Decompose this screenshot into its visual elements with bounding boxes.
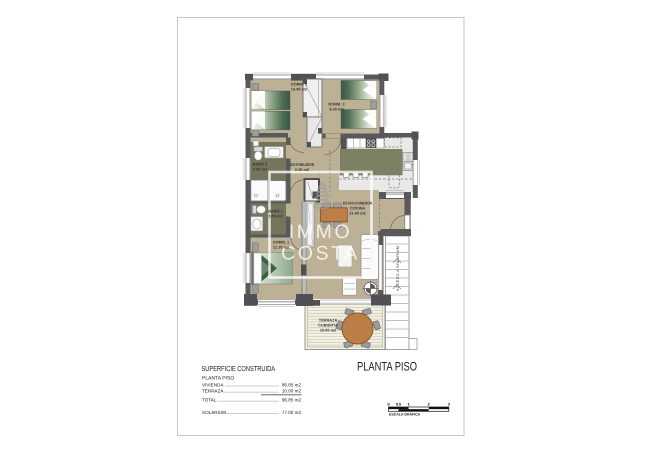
svg-text:0: 0 bbox=[387, 402, 389, 406]
svg-text:9.30 m2: 9.30 m2 bbox=[329, 107, 344, 112]
svg-text:2: 2 bbox=[428, 402, 430, 406]
svg-text:10.40 m2: 10.40 m2 bbox=[291, 87, 308, 92]
svg-text:TOTAL: TOTAL bbox=[202, 398, 217, 403]
svg-text:ESCALA GRÁFICA: ESCALA GRÁFICA bbox=[389, 411, 421, 416]
svg-text:PLANTA PISO: PLANTA PISO bbox=[357, 360, 417, 374]
svg-text:2.40 m2: 2.40 m2 bbox=[295, 167, 310, 172]
svg-text:77.00 m2: 77.00 m2 bbox=[282, 410, 302, 415]
svg-text:SUPERFICIE CONSTRUIDA: SUPERFICIE CONSTRUIDA bbox=[202, 364, 276, 373]
svg-text:10.00 m2: 10.00 m2 bbox=[282, 389, 302, 394]
svg-text:VIVIENDA: VIVIENDA bbox=[202, 382, 224, 387]
svg-text:SOLARIUM: SOLARIUM bbox=[202, 410, 226, 415]
svg-text:1: 1 bbox=[407, 402, 409, 406]
svg-text:PLANTA PISO: PLANTA PISO bbox=[202, 376, 234, 382]
svg-text:10.00 m2: 10.00 m2 bbox=[320, 328, 337, 333]
svg-text:IMMO: IMMO bbox=[289, 221, 352, 243]
svg-text:31.40 m2: 31.40 m2 bbox=[349, 211, 366, 216]
svg-text:0.5: 0.5 bbox=[396, 402, 401, 406]
svg-text:96.85 m2: 96.85 m2 bbox=[282, 398, 302, 403]
svg-text:3.00 m2: 3.00 m2 bbox=[268, 214, 283, 219]
svg-text:ACCESO A SOLARIUM: ACCESO A SOLARIUM bbox=[396, 246, 400, 291]
svg-text:86.85 m2: 86.85 m2 bbox=[282, 382, 302, 387]
svg-text:TERRAZA: TERRAZA bbox=[202, 389, 224, 394]
svg-text:COSTA: COSTA bbox=[281, 243, 360, 265]
svg-text:3: 3 bbox=[448, 402, 450, 406]
svg-text:11.10 m2: 11.10 m2 bbox=[273, 245, 290, 250]
svg-text:3.00 m2: 3.00 m2 bbox=[253, 167, 268, 172]
